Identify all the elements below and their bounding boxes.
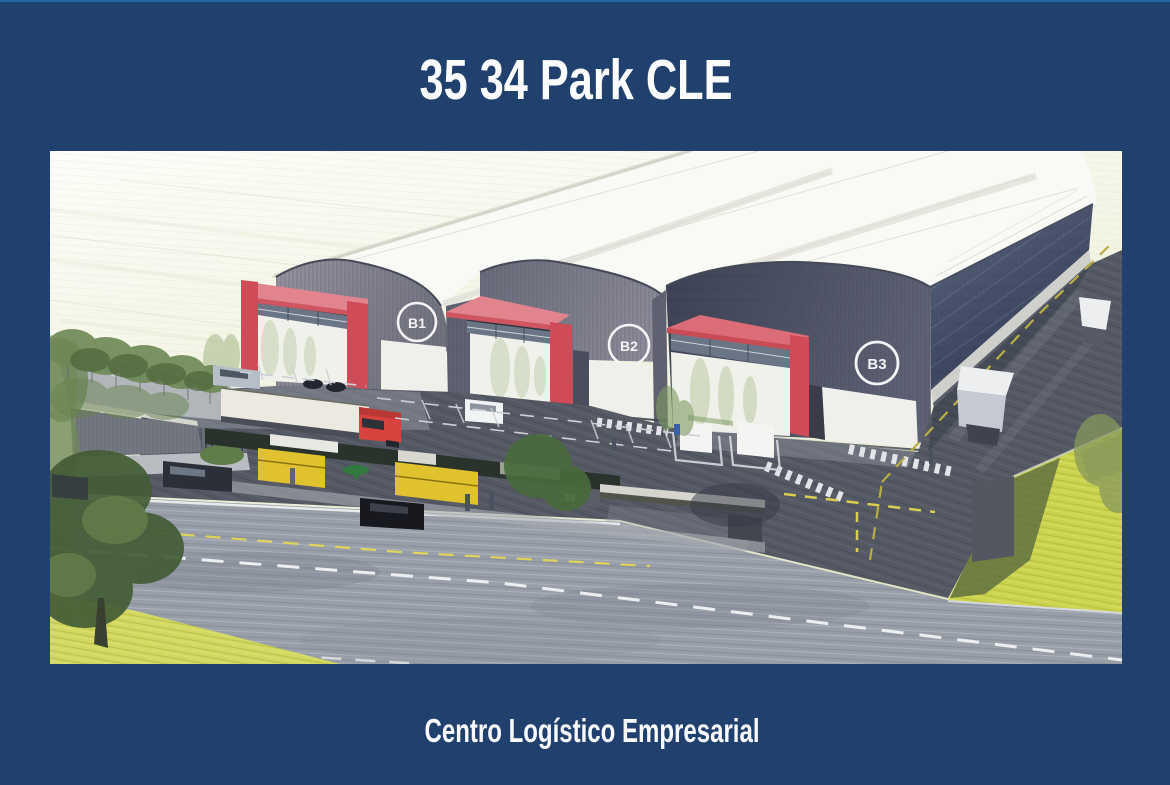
svg-text:Centro Logístico Empresarial: Centro Logístico Empresarial [425, 712, 760, 749]
svg-text:B1: B1 [408, 315, 426, 331]
svg-text:B3: B3 [867, 356, 886, 373]
svg-text:35 34 Park CLE: 35 34 Park CLE [420, 48, 733, 112]
svg-text:B2: B2 [620, 338, 638, 354]
